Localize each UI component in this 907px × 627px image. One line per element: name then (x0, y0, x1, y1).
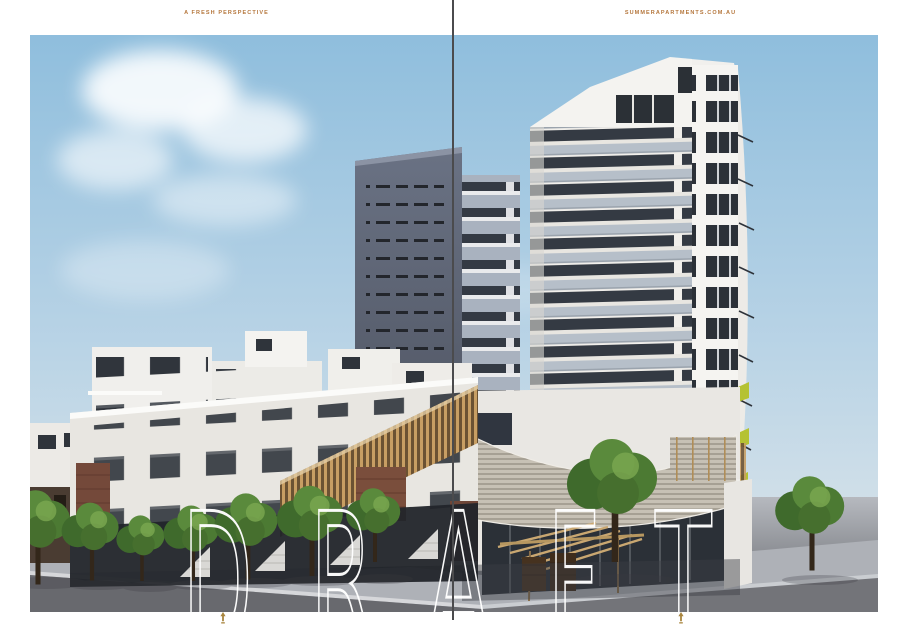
render-image: DRAFT (30, 35, 878, 612)
page-ornament-icon (677, 612, 685, 625)
left-page-header: A FRESH PERSPECTIVE (0, 10, 453, 16)
draft-watermark: DRAFT (182, 490, 768, 612)
brochure-spread: A FRESH PERSPECTIVE SUMMERAPARTMENTS.COM… (0, 0, 907, 627)
right-page-header: SUMMERAPARTMENTS.COM.AU (454, 10, 907, 16)
center-fold-divider (452, 0, 454, 620)
page-ornament-icon (219, 612, 227, 625)
